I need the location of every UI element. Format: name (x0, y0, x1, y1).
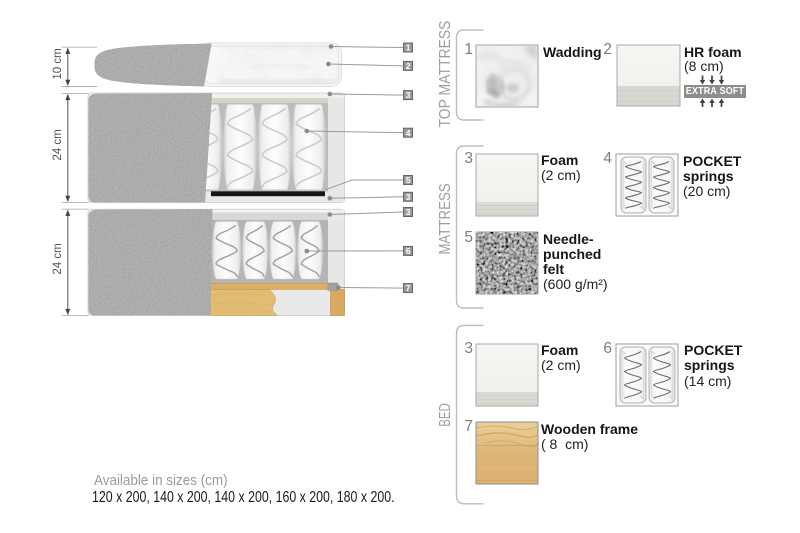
svg-text:3: 3 (406, 90, 411, 100)
svg-text:5: 5 (406, 175, 411, 185)
svg-text:7: 7 (406, 283, 411, 293)
svg-text:2: 2 (406, 61, 411, 71)
svg-text:3: 3 (406, 192, 411, 202)
svg-text:3: 3 (406, 207, 411, 217)
svg-text:1: 1 (406, 43, 411, 53)
svg-text:6: 6 (406, 246, 411, 256)
svg-text:4: 4 (406, 128, 411, 138)
